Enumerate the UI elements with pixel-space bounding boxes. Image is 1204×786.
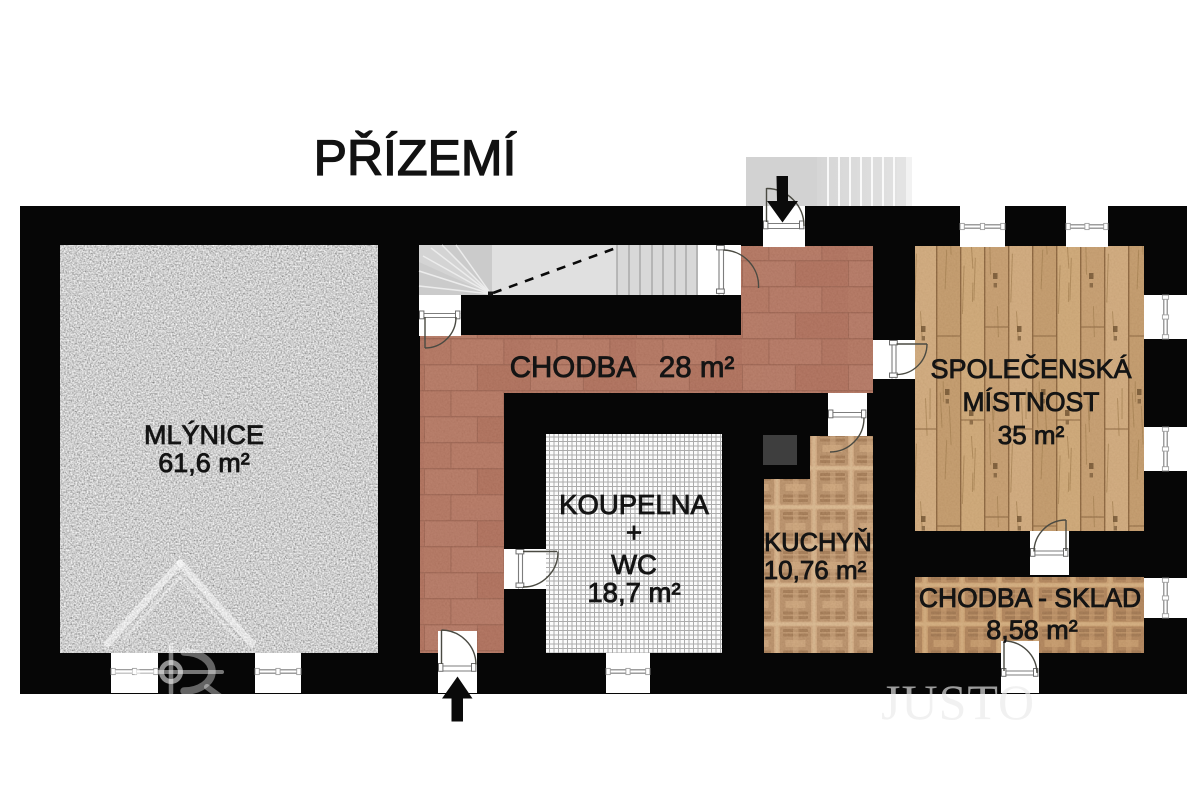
svg-text:10,76 m²: 10,76 m² xyxy=(764,555,867,585)
svg-text:61,6 m²: 61,6 m² xyxy=(158,448,250,478)
svg-text:KUCHYŇ: KUCHYŇ xyxy=(764,528,872,557)
svg-text:35 m²: 35 m² xyxy=(998,420,1065,450)
svg-text:18,7 m²: 18,7 m² xyxy=(587,577,680,608)
svg-text:SPOLEČENSKÁ: SPOLEČENSKÁ xyxy=(930,353,1131,384)
svg-text:8,58 m²: 8,58 m² xyxy=(986,615,1078,645)
svg-text:CHODBA - SKLAD: CHODBA - SKLAD xyxy=(919,583,1141,613)
svg-text:KOUPELNA: KOUPELNA xyxy=(559,489,709,520)
svg-text:CHODBA 28 m²: CHODBA 28 m² xyxy=(510,351,735,384)
svg-text:+: + xyxy=(626,517,642,548)
svg-text:JUSTO: JUSTO xyxy=(881,674,1035,730)
svg-text:MLÝNICE: MLÝNICE xyxy=(144,420,264,450)
svg-text:MÍSTNOST: MÍSTNOST xyxy=(963,387,1100,417)
svg-text:WC: WC xyxy=(611,549,657,580)
svg-text:PŘÍZEMÍ: PŘÍZEMÍ xyxy=(314,130,517,186)
